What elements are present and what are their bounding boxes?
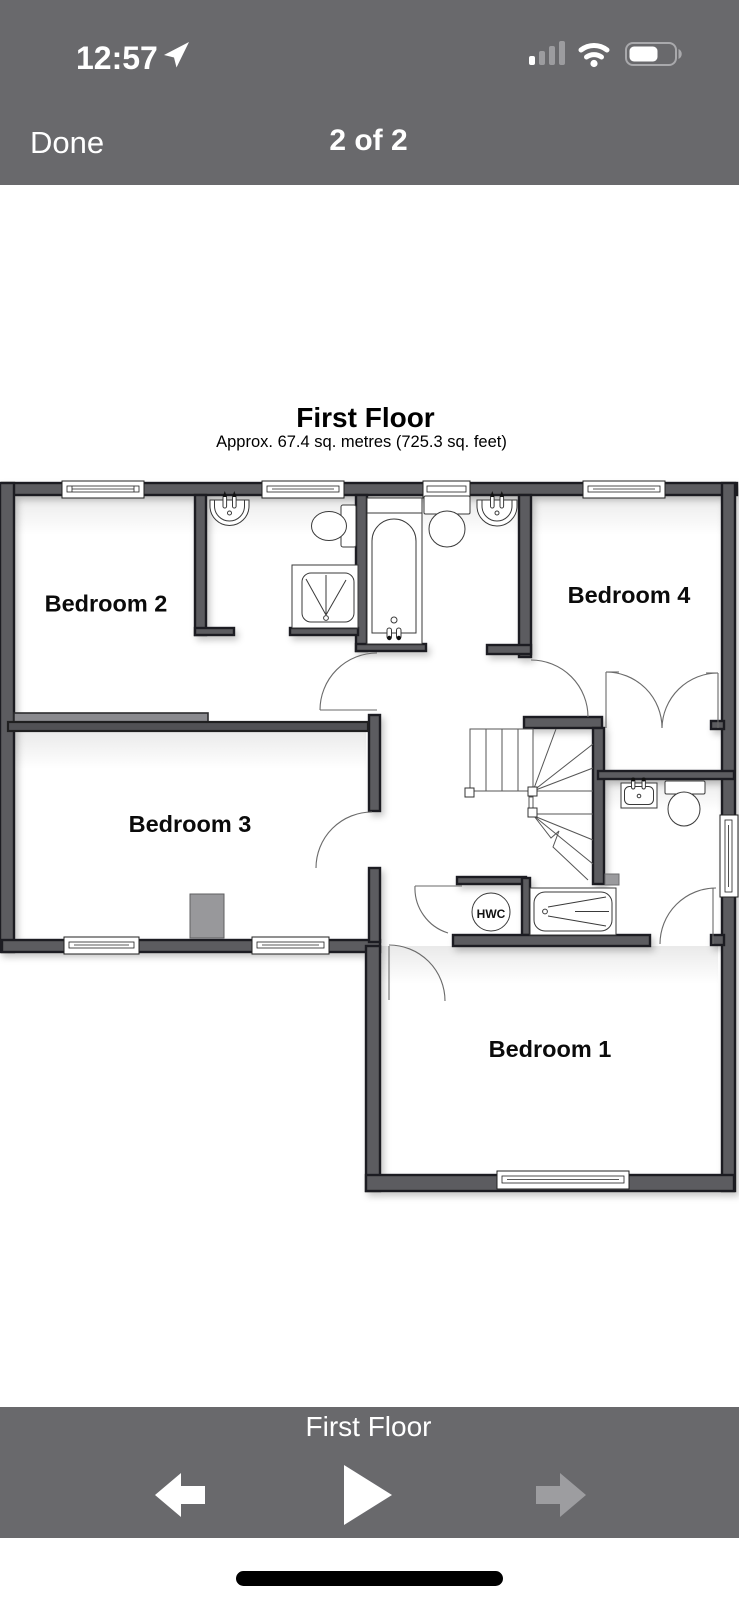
svg-text:Bedroom 2: Bedroom 2 [45,591,168,617]
svg-text:HWC: HWC [477,907,506,921]
svg-text:Bedroom 4: Bedroom 4 [568,582,691,608]
svg-text:Bedroom 3: Bedroom 3 [129,811,252,837]
svg-text:Bedroom 1: Bedroom 1 [489,1036,612,1062]
